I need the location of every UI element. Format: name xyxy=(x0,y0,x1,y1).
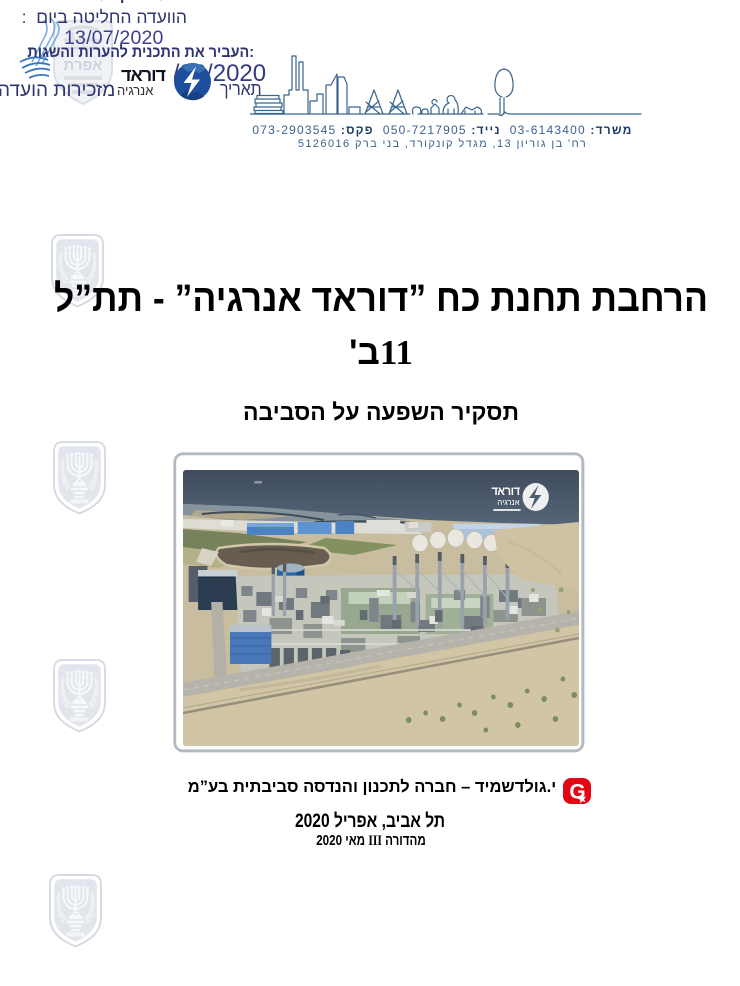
svg-text:דוראד: דוראד xyxy=(491,485,520,498)
svg-text:אנרגיה: אנרגיה xyxy=(497,498,520,507)
